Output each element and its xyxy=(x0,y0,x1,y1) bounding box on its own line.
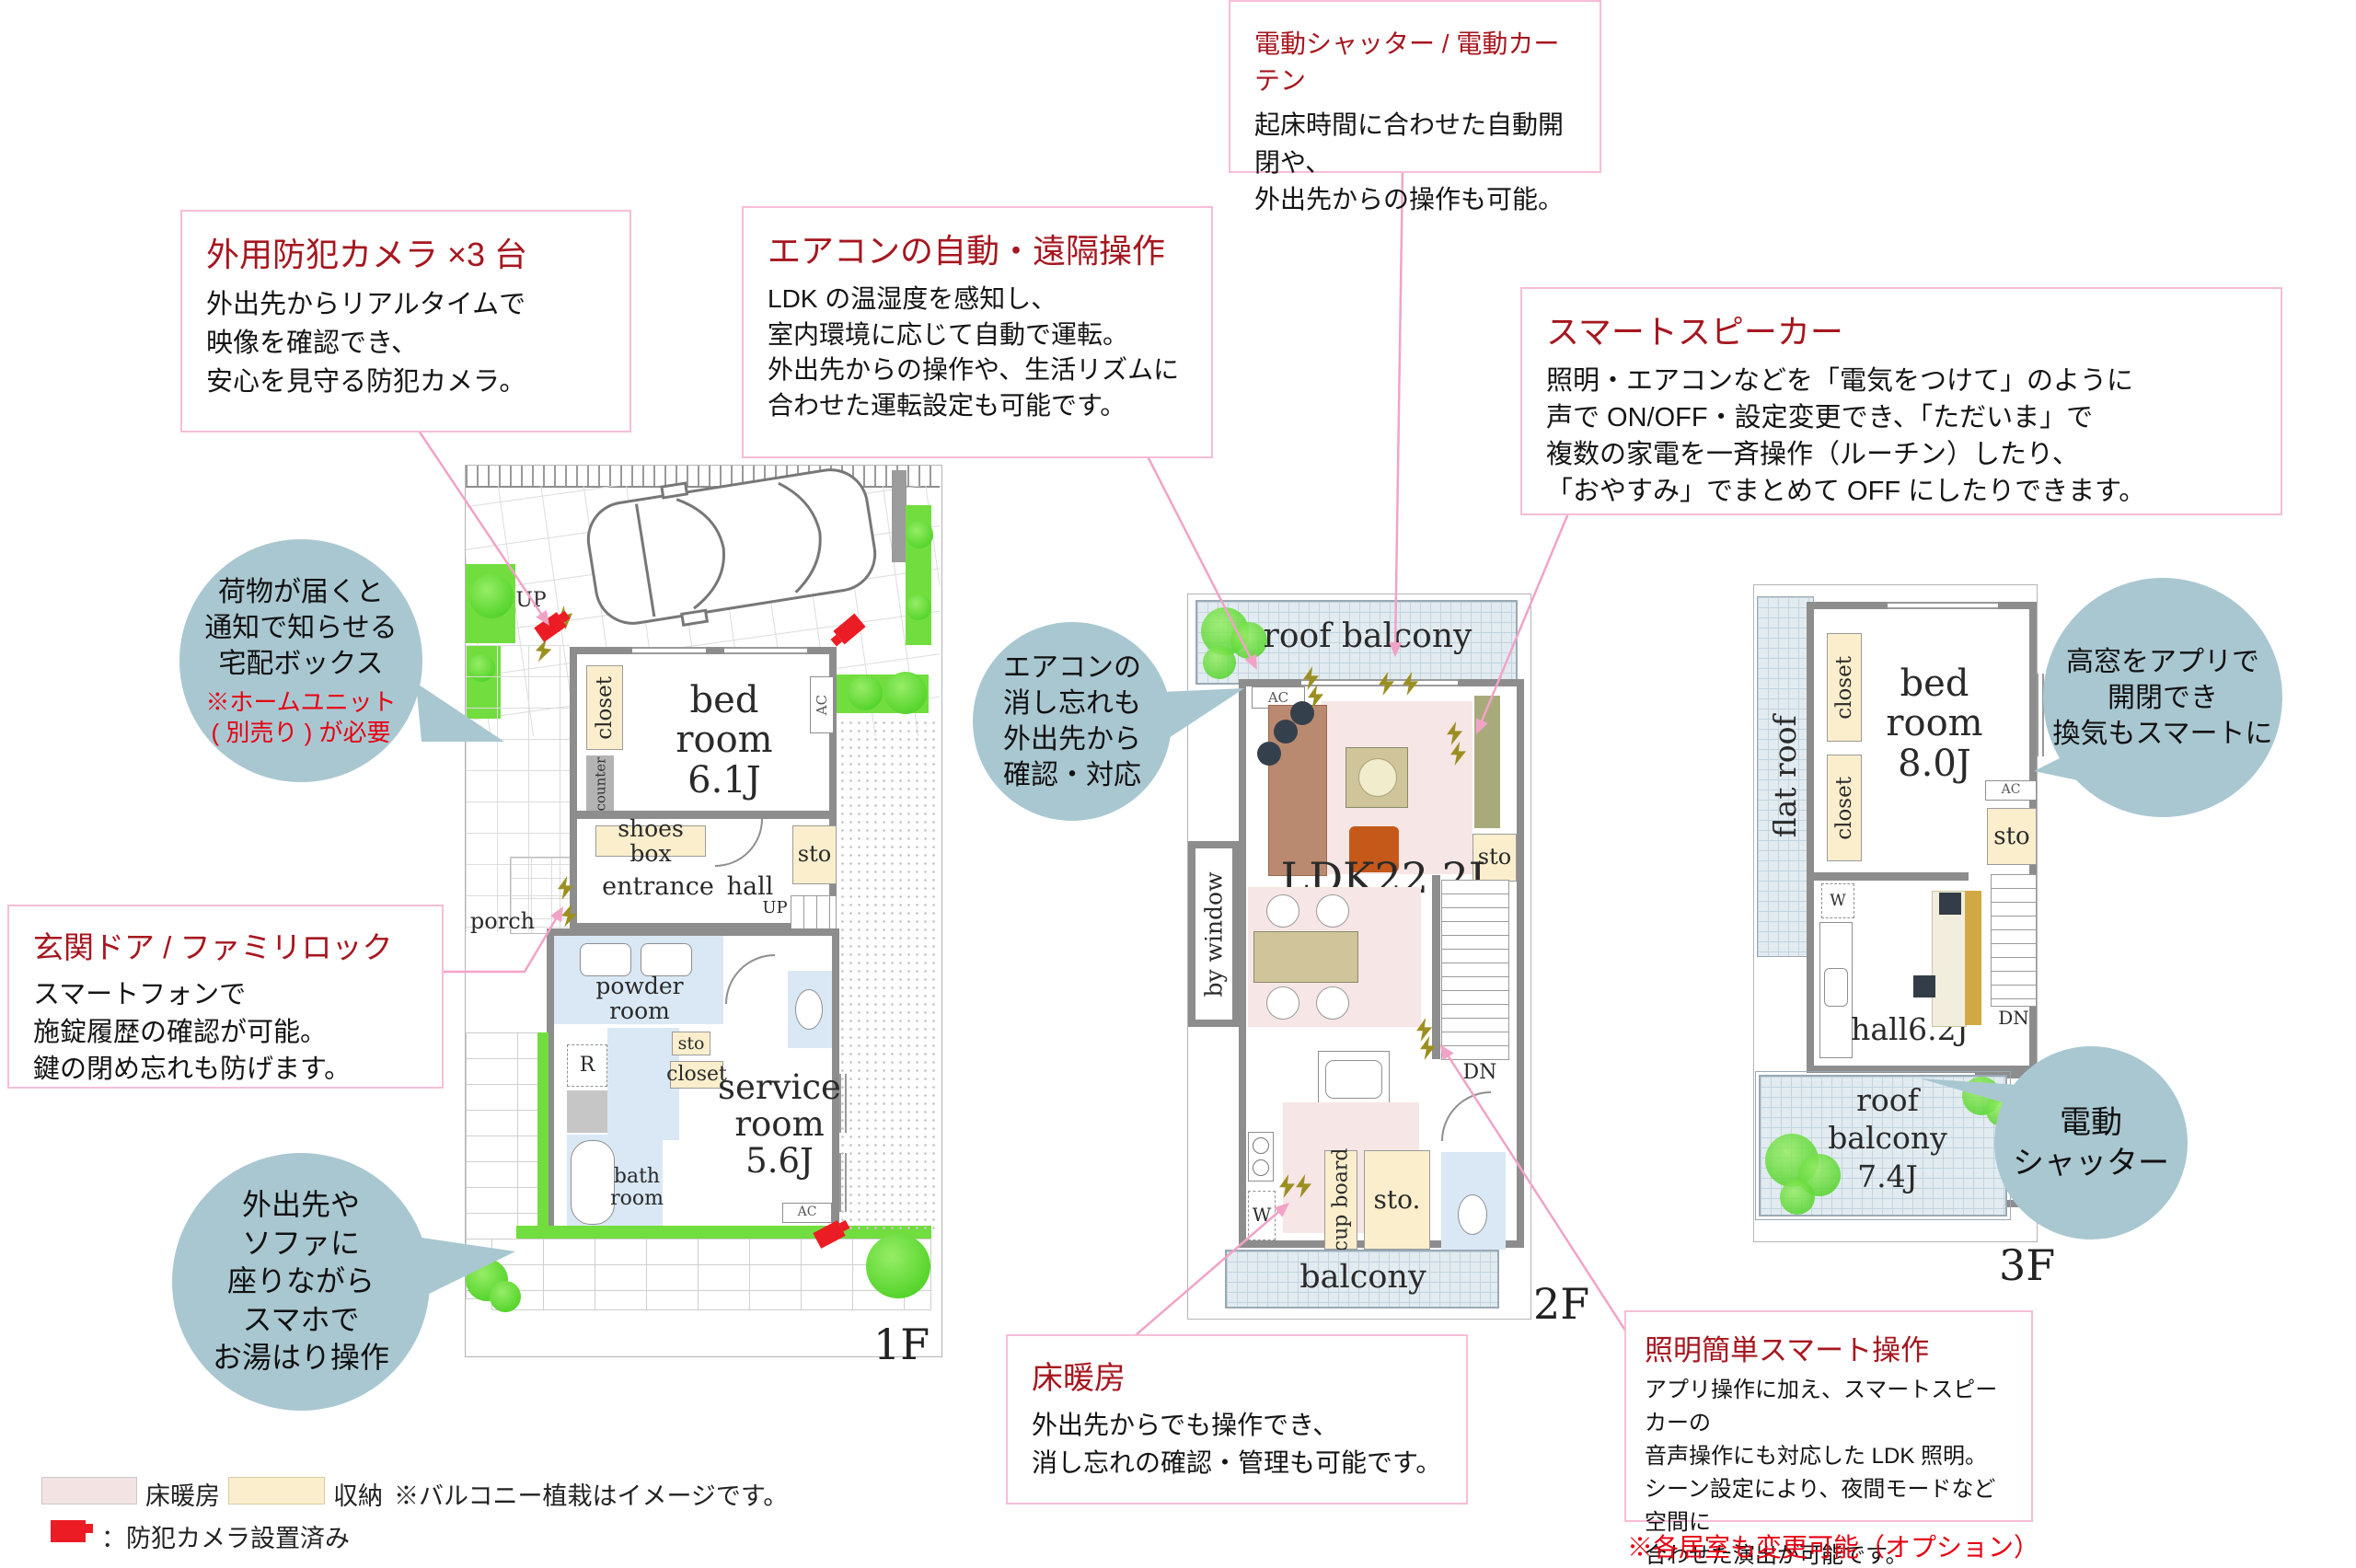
bubble-electric-shutter: 電動 シャッター xyxy=(1994,1046,2188,1239)
dn-label-2f: DN xyxy=(1456,1062,1504,1084)
roof-balcony-2f-label: roof balcony xyxy=(1257,617,1478,657)
building-3f: closet closet bed room 8.0J AC sto W hal… xyxy=(1807,602,2037,1073)
counter-label: counter xyxy=(593,757,607,812)
bubble-text: 電動 シャッター xyxy=(2013,1102,2169,1183)
dining-chair xyxy=(1316,894,1349,928)
door-arc xyxy=(1441,1091,1491,1141)
up-label-hall: UP xyxy=(757,899,792,917)
callout-body: LDK の温湿度を感知し、 室内環境に応じて自動で運転。 外出先からの操作や、生… xyxy=(768,282,1187,424)
floor-label-1f: 1F xyxy=(873,1320,930,1369)
callout-title: 電動シャッター / 電動カーテン xyxy=(1254,24,1576,98)
flat-roof-label: flat roof xyxy=(1769,715,1802,837)
w-2f-label: W xyxy=(1248,1191,1276,1240)
bubble-text: 高窓をアプリで 開閉でき 換気もスマートに xyxy=(2052,644,2272,752)
bubble-text: 外出先や ソファに 座りながら スマホで お湯はり操作 xyxy=(213,1186,389,1378)
closet-label: closet xyxy=(594,676,617,740)
callout-body: 照明・エアコンなどを「電気をつけて」のように 声で ON/OFF・設定変更でき、… xyxy=(1546,363,2257,510)
dining-table xyxy=(1253,931,1358,983)
legend-floorheat-swatch xyxy=(41,1477,137,1505)
ac-3f-label: AC xyxy=(1985,780,2037,801)
toilet xyxy=(1458,1194,1487,1235)
bubble-note: ※ホームユニット ( 別売り ) が必要 xyxy=(205,687,396,747)
stairs-3f xyxy=(1991,874,2037,1007)
garden-strip xyxy=(537,1032,549,1234)
sto-label: sto xyxy=(792,825,837,884)
bath-room-label: bath room xyxy=(611,1160,663,1216)
sink-3f xyxy=(1824,968,1848,1007)
balcony-label: balcony xyxy=(1271,1255,1455,1301)
legend-planting-note: ※バルコニー植栽はイメージです。 xyxy=(394,1476,788,1512)
callout-title: 玄関ドア / ファミリロック xyxy=(33,923,418,967)
garage-wall xyxy=(892,470,907,562)
floor-label-3f: 3F xyxy=(1999,1240,2055,1290)
legend-storage-swatch xyxy=(228,1477,325,1505)
stairs-1f xyxy=(791,895,837,930)
shoes-box-label: shoes box xyxy=(595,825,706,857)
wall xyxy=(1432,875,1440,1059)
legend-floorheat-label: 床暖房 xyxy=(145,1476,220,1512)
building-1f-upper: closet counter bed room 6.1J AC shoes bo… xyxy=(570,647,837,930)
porch-label: porch xyxy=(468,910,537,934)
tree xyxy=(490,1281,521,1312)
callout-title: エアコンの自動・遠隔操作 xyxy=(768,225,1187,272)
stairs-2f xyxy=(1441,880,1509,1060)
door-arc xyxy=(725,954,775,1004)
dn-label-3f: DN xyxy=(1991,1009,2037,1029)
site-plan-1f: UP porch closet counter bed room 6.1J xyxy=(465,465,942,1357)
window xyxy=(1301,679,1458,686)
closet2-label: closet xyxy=(670,1061,723,1089)
floor-label-2f: 2F xyxy=(1533,1279,1589,1329)
legend-storage-label: 収納 xyxy=(333,1476,383,1512)
closet1-3f-label: closet xyxy=(1833,656,1856,720)
callout-title: 照明簡単スマート操作 xyxy=(1645,1327,2013,1368)
window xyxy=(1888,602,1998,609)
tree xyxy=(906,521,933,548)
kitchen-sink xyxy=(1325,1060,1382,1099)
entrance-label: entrance xyxy=(601,873,715,901)
ac2-label: AC xyxy=(782,1203,832,1223)
cushion xyxy=(1257,742,1281,766)
desk xyxy=(1965,891,1981,1025)
bedroom-3f-label: bed room 8.0J xyxy=(1875,648,1994,801)
bay-window-annex: by window xyxy=(1188,841,1240,1027)
bathtub xyxy=(571,1140,615,1225)
legend-camera-icon xyxy=(51,1520,86,1542)
wall xyxy=(1814,872,1969,881)
cushion xyxy=(1290,701,1314,725)
sink xyxy=(580,943,631,976)
by-window-label: by window xyxy=(1202,871,1227,997)
tree xyxy=(906,594,931,620)
callout-floor-heating: 床暖房 外出先からでも操作でき、 消し忘れの確認・管理も可能です。 xyxy=(1006,1334,1468,1505)
callout-entrance-door: 玄関ドア / ファミリロック スマートフォンで 施錠履歴の確認が可能。 鍵の閉め… xyxy=(7,905,444,1089)
callout-smart-speaker: スマートスピーカー 照明・エアコンなどを「電気をつけて」のように 声で ON/O… xyxy=(1520,287,2282,515)
callout-electric-shutter: 電動シャッター / 電動カーテン 起床時間に合わせた自動開閉や、 外出先からの操… xyxy=(1229,0,1601,173)
toilet xyxy=(795,989,823,1030)
callout-security-camera: 外用防犯カメラ ×3 台 外出先からリアルタイムで 映像を確認でき、 安心を見守… xyxy=(180,210,631,432)
service-room-label: service room 5.6J xyxy=(720,1055,839,1193)
bubble-bath-fill: 外出先や ソファに 座りながら スマホで お湯はり操作 xyxy=(172,1153,430,1411)
powder-room-label: powder room xyxy=(580,973,699,1024)
desk-chair xyxy=(1913,975,1935,997)
washer-space xyxy=(567,1090,607,1133)
tree xyxy=(469,574,514,618)
callout-smart-lighting: 照明簡単スマート操作 アプリ操作に加え、スマートスピーカーの 音声操作にも対応し… xyxy=(1624,1310,2033,1522)
sto-3f-label: sto xyxy=(1987,808,2037,865)
up-label-driveway: UP xyxy=(510,590,552,612)
building-1f-lower: powder room R sto closet service room 5.… xyxy=(547,928,839,1236)
building-2f: AC sto LDK22.2J DN xyxy=(1239,679,1524,1248)
legend: 床暖房 収納 ※バルコニー植栽はイメージです。 ：防犯カメラ設置済み xyxy=(0,1469,828,1568)
callout-body: 外出先からリアルタイムで 映像を確認でき、 安心を見守る防犯カメラ。 xyxy=(206,285,606,401)
gravel-area xyxy=(838,719,938,1232)
smart-home-floorplan-infographic: UP porch closet counter bed room 6.1J xyxy=(0,0,2356,1568)
bench-mat xyxy=(1474,696,1500,828)
balcony-plant xyxy=(1780,1180,1815,1215)
bedroom-1f-label: bed room 6.1J xyxy=(634,678,814,803)
terrace-brick-bottom xyxy=(491,1239,931,1310)
burner xyxy=(1253,1137,1269,1154)
burner xyxy=(1253,1159,1269,1176)
sto2-label: sto xyxy=(672,1032,710,1055)
bubble-delivery-box: 荷物が届くと 通知で知らせる 宅配ボックス ※ホームユニット ( 別売り ) が… xyxy=(179,539,422,782)
callout-aircon: エアコンの自動・遠隔操作 LDK の温湿度を感知し、 室内環境に応じて自動で運転… xyxy=(742,206,1213,458)
window xyxy=(632,647,706,654)
table-decor xyxy=(1358,758,1397,797)
callout-body: 外出先からでも操作でき、 消し忘れの確認・管理も可能です。 xyxy=(1032,1407,1442,1482)
closet2-3f-label: closet xyxy=(1833,777,1856,840)
balcony-plant xyxy=(1203,646,1236,679)
tree xyxy=(866,1234,930,1298)
dining-chair xyxy=(1316,986,1349,1020)
site-plan-2f: roof balcony AC sto LDK22.2J DN xyxy=(1187,594,1531,1320)
dining-chair xyxy=(1266,894,1299,928)
window xyxy=(724,647,807,654)
cushion xyxy=(1274,720,1298,744)
tree xyxy=(884,672,927,714)
cupboard-label: cup board xyxy=(1330,1148,1352,1252)
callout-title: スマートスピーカー xyxy=(1546,306,2257,353)
bubble-text: エアコンの 消し忘れも 外出先から 確認・対応 xyxy=(1003,650,1141,793)
bubble-text: 荷物が届くと 通知で知らせる 宅配ボックス xyxy=(204,574,397,682)
sto2-2f-label: sto. xyxy=(1364,1150,1430,1250)
callout-title: 床暖房 xyxy=(1032,1353,1442,1398)
dining-chair xyxy=(1266,986,1299,1020)
door-arc xyxy=(715,819,763,867)
bubble-high-window: 高窓をアプリで 開閉でき 換気もスマートに xyxy=(2043,578,2282,817)
refrigerator-label: R xyxy=(567,1044,607,1087)
callout-body: スマートフォンで 施錠履歴の確認が可能。 鍵の閉め忘れも防げます。 xyxy=(33,976,418,1089)
desk-chair xyxy=(1939,893,1961,915)
legend-camera-label: ：防犯カメラ設置済み xyxy=(101,1518,350,1554)
ac-label: AC xyxy=(814,695,829,715)
sink xyxy=(641,943,692,976)
callout-title: 外用防犯カメラ ×3 台 xyxy=(206,228,606,276)
bubble-aircon-off: エアコンの 消し忘れも 外出先から 確認・対応 xyxy=(973,622,1172,821)
callout-body: 起床時間に合わせた自動開閉や、 外出先からの操作も可能。 xyxy=(1254,107,1576,219)
tree xyxy=(848,675,883,710)
w-3f-label: W xyxy=(1821,883,1854,918)
hall-label: hall xyxy=(715,873,785,901)
lighting-option-note: ※各居室も変更可能（オプション） xyxy=(1627,1528,2039,1564)
